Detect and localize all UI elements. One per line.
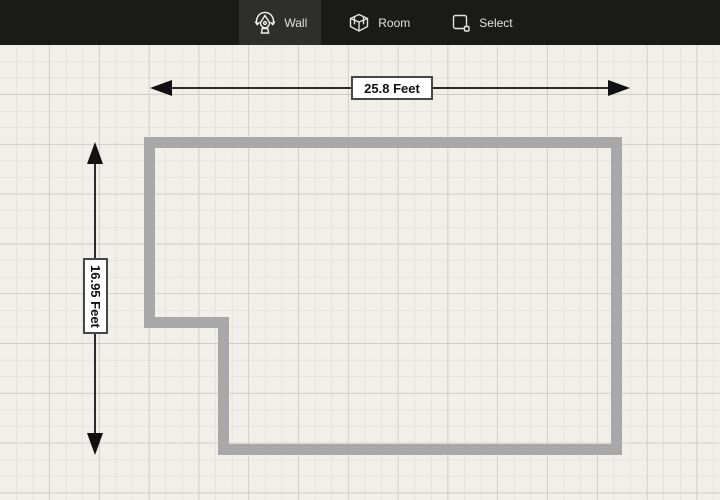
horizontal-dimension-label: 25.8 Feet	[351, 76, 433, 100]
floorplan-canvas[interactable]	[0, 45, 720, 500]
room-tool-button[interactable]: Room	[333, 0, 424, 45]
wall-tool-label: Wall	[284, 16, 307, 30]
vertical-dimension-label: 16.95 Feet	[83, 258, 108, 334]
wall-tool-button[interactable]: Wall	[239, 0, 321, 45]
select-tool-button[interactable]: Select	[436, 0, 526, 45]
wall-pen-nib-icon	[253, 10, 277, 36]
canvas-svg[interactable]	[0, 45, 720, 500]
room-tool-label: Room	[378, 16, 410, 30]
toolbar: Wall Room Select	[0, 0, 720, 45]
select-marquee-icon	[450, 12, 472, 34]
room-box-3d-icon	[347, 11, 371, 35]
select-tool-label: Select	[479, 16, 512, 30]
